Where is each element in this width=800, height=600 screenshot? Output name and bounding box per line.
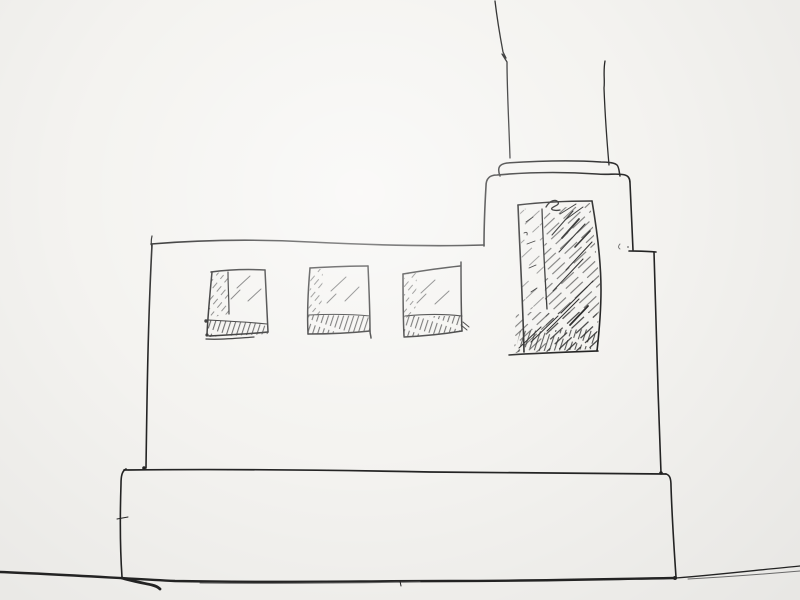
base-plinth <box>117 469 677 589</box>
base-right-edge <box>666 474 676 577</box>
window-2 <box>308 266 371 338</box>
chimney-right-line <box>604 61 609 165</box>
building-sketch <box>0 0 800 600</box>
building-left-wall <box>146 245 152 468</box>
window-1 <box>204 270 268 340</box>
building-right-ledge <box>629 251 656 252</box>
ground-line <box>0 566 800 586</box>
tower-window-top <box>518 201 592 205</box>
tower-window <box>509 200 601 355</box>
chimney <box>495 1 609 165</box>
sketch-page <box>0 0 800 600</box>
building-top-edge <box>151 240 484 245</box>
chimney-left-line <box>495 1 510 158</box>
base-left-edge <box>120 469 126 577</box>
window-3-sill <box>405 315 462 317</box>
building-right-wall <box>654 252 661 473</box>
base-top-edge <box>124 470 666 474</box>
window-3 <box>403 262 469 337</box>
